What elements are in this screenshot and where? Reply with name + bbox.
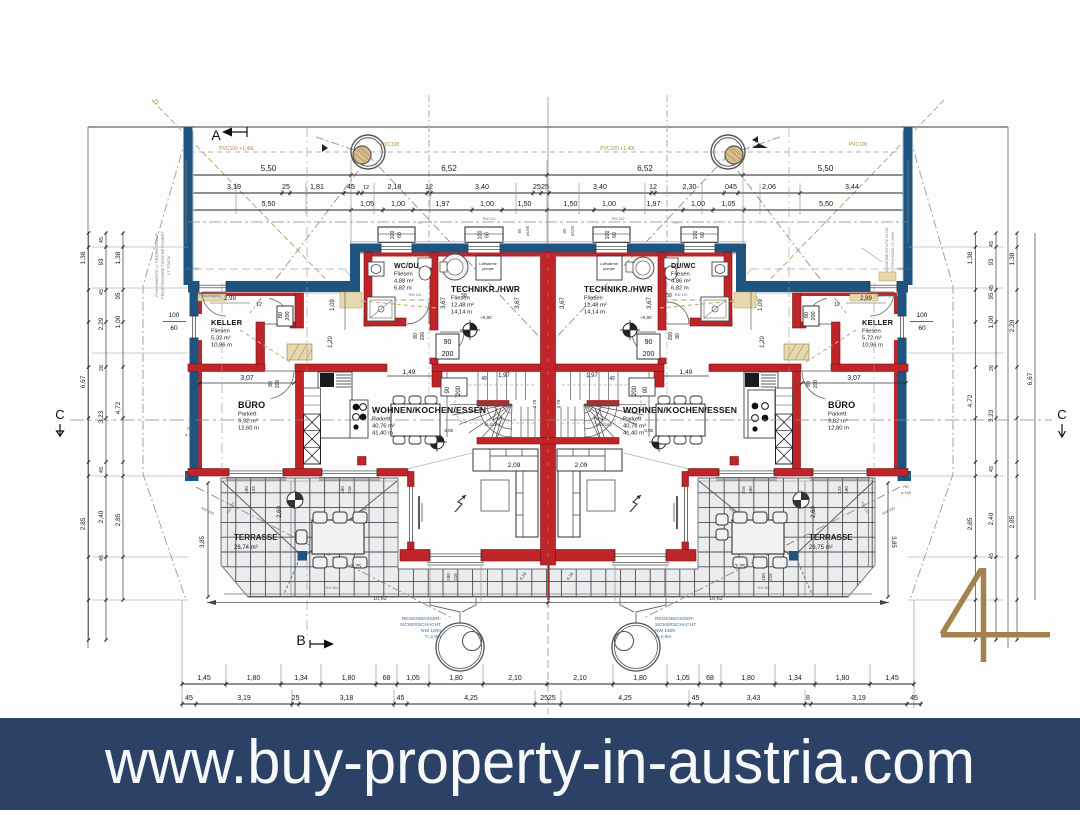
svg-text:2,40: 2,40 <box>988 512 995 525</box>
svg-text:3,19: 3,19 <box>227 182 241 191</box>
svg-text:5,72 m²: 5,72 m² <box>862 336 882 342</box>
svg-text:pumpe: pumpe <box>482 267 494 271</box>
svg-text:3,07: 3,07 <box>240 375 254 382</box>
svg-text:45: 45 <box>99 237 105 243</box>
svg-text:PUTZFASSADE LT. WAHL: PUTZFASSADE LT. WAHL <box>891 231 895 274</box>
svg-text:60: 60 <box>700 232 706 238</box>
svg-text:NW 370: NW 370 <box>898 267 911 271</box>
svg-text:Parkett: Parkett <box>238 412 257 418</box>
svg-text:200: 200 <box>275 380 281 389</box>
svg-text:4,86 m²: 4,86 m² <box>671 279 691 285</box>
svg-text:1,05: 1,05 <box>406 675 420 682</box>
svg-text:NW 1500: NW 1500 <box>655 628 675 634</box>
svg-text:2,10: 2,10 <box>508 675 522 682</box>
svg-text:BÜRO: BÜRO <box>828 400 855 410</box>
svg-text:A: A <box>211 127 221 143</box>
svg-text:1,49: 1,49 <box>403 369 416 376</box>
svg-text:2,10: 2,10 <box>573 675 587 682</box>
svg-text:41,40 m: 41,40 m <box>623 431 644 437</box>
svg-text:60: 60 <box>170 325 178 332</box>
svg-text:ø 165: ø 165 <box>901 491 911 495</box>
svg-text:26: 26 <box>99 365 105 371</box>
svg-text:200: 200 <box>813 380 819 389</box>
svg-text:3,43: 3,43 <box>747 695 761 702</box>
svg-text:10,96 m: 10,96 m <box>862 343 883 349</box>
svg-text:KELLER: KELLER <box>862 318 894 327</box>
svg-text:3,18: 3,18 <box>340 695 354 702</box>
svg-text:2525: 2525 <box>540 695 556 702</box>
svg-text:4,72: 4,72 <box>115 401 122 414</box>
svg-text:1,00: 1,00 <box>480 199 494 208</box>
svg-text:C: C <box>55 407 64 422</box>
svg-text:12: 12 <box>834 302 840 308</box>
svg-text:1,00: 1,00 <box>115 315 122 328</box>
svg-text:200: 200 <box>456 385 462 396</box>
svg-text:200: 200 <box>285 311 291 320</box>
svg-text:90: 90 <box>444 339 452 346</box>
svg-text:200: 200 <box>420 332 426 341</box>
svg-text:85: 85 <box>562 228 567 234</box>
svg-text:1,45: 1,45 <box>885 675 899 682</box>
svg-text:+0,00: +0,00 <box>640 315 652 320</box>
svg-text:3,40: 3,40 <box>593 182 607 191</box>
svg-text:1,09: 1,09 <box>758 299 764 311</box>
svg-text:200: 200 <box>442 351 454 358</box>
svg-text:200: 200 <box>668 332 674 341</box>
svg-text:Fliesen: Fliesen <box>584 296 603 302</box>
svg-text:WOHNEN/KOCHEN/ESSEN: WOHNEN/KOCHEN/ESSEN <box>623 405 737 415</box>
svg-text:8: 8 <box>806 695 810 702</box>
svg-text:60: 60 <box>612 232 618 238</box>
svg-text:49: 49 <box>609 376 615 382</box>
svg-text:60: 60 <box>397 232 403 238</box>
svg-text:49: 49 <box>481 376 487 382</box>
svg-text:1,38: 1,38 <box>967 251 974 264</box>
svg-text:12,48 m²: 12,48 m² <box>584 303 607 309</box>
svg-text:1,09: 1,09 <box>330 299 336 311</box>
svg-text:Luftwärme: Luftwärme <box>479 262 497 266</box>
svg-text:90: 90 <box>643 386 649 393</box>
svg-text:80: 80 <box>806 381 812 387</box>
svg-text:FROSTSICHERE TIEFE BETONIERT: FROSTSICHERE TIEFE BETONIERT <box>160 231 165 299</box>
svg-text:2,60: 2,60 <box>277 506 283 518</box>
svg-text:RW 110: RW 110 <box>612 217 625 221</box>
svg-text:T=2,9m: T=2,9m <box>425 634 441 640</box>
svg-text:RW 110: RW 110 <box>409 293 422 297</box>
svg-text:KELLER: KELLER <box>211 318 243 327</box>
svg-text:RW 110: RW 110 <box>483 217 496 221</box>
svg-text:3,23: 3,23 <box>98 410 105 423</box>
svg-text:5,50: 5,50 <box>262 199 276 208</box>
svg-text:3,67: 3,67 <box>515 297 521 309</box>
svg-text:RH: RH <box>417 221 423 225</box>
svg-text:1,49: 1,49 <box>680 369 693 376</box>
svg-text:1,80: 1,80 <box>836 675 850 682</box>
svg-text:25: 25 <box>282 182 290 191</box>
svg-text:RW 110: RW 110 <box>675 293 688 297</box>
svg-text:12: 12 <box>425 182 433 191</box>
svg-text:45: 45 <box>185 695 193 702</box>
svg-text:68: 68 <box>706 675 714 682</box>
svg-text:1,05: 1,05 <box>676 675 690 682</box>
svg-text:2,30: 2,30 <box>683 182 697 191</box>
svg-text:ø100: ø100 <box>525 225 530 236</box>
svg-text:1,00: 1,00 <box>691 199 705 208</box>
svg-text:2,85: 2,85 <box>1009 515 1016 528</box>
svg-text:ø100: ø100 <box>570 225 575 236</box>
svg-text:3,85: 3,85 <box>890 536 896 548</box>
svg-text:1,80: 1,80 <box>633 675 647 682</box>
svg-text:1,05: 1,05 <box>722 199 736 208</box>
svg-text:2,60: 2,60 <box>811 506 817 518</box>
svg-text:12,60 m: 12,60 m <box>238 426 259 432</box>
svg-text:14,14 m: 14,14 m <box>584 310 605 316</box>
svg-text:Fliesen: Fliesen <box>671 272 690 278</box>
svg-text:6,82 m: 6,82 m <box>671 286 689 292</box>
svg-text:1,20: 1,20 <box>328 336 334 348</box>
svg-text:PVC100 +1,49L: PVC100 +1,49L <box>600 146 636 152</box>
svg-text:95: 95 <box>989 292 995 299</box>
svg-text:100: 100 <box>605 231 611 240</box>
svg-text:FUNDAMENTE U. ERDREICH AUF: FUNDAMENTE U. ERDREICH AUF <box>154 233 159 297</box>
svg-text:1,97: 1,97 <box>647 199 661 208</box>
svg-text:45: 45 <box>989 241 995 247</box>
svg-text:T=2,9m: T=2,9m <box>655 634 671 640</box>
svg-text:58: 58 <box>461 293 467 299</box>
svg-text:1,97: 1,97 <box>436 199 450 208</box>
svg-text:90: 90 <box>445 386 451 393</box>
svg-text:40,76 m²: 40,76 m² <box>623 424 646 430</box>
svg-text:6,67: 6,67 <box>1027 372 1034 385</box>
svg-text:10,62: 10,62 <box>373 596 387 602</box>
svg-text:NW 370: NW 370 <box>186 267 199 271</box>
svg-text:1,80: 1,80 <box>741 675 755 682</box>
svg-text:C: C <box>1057 407 1066 422</box>
svg-text:REGENWASSER-: REGENWASSER- <box>655 616 695 622</box>
svg-text:1,38: 1,38 <box>115 251 122 264</box>
svg-text:200: 200 <box>811 311 817 320</box>
svg-text:3,44: 3,44 <box>845 182 859 191</box>
svg-text:5,50: 5,50 <box>819 199 833 208</box>
svg-text:4,88 m²: 4,88 m² <box>394 279 414 285</box>
svg-text:100: 100 <box>169 312 180 319</box>
svg-text:45: 45 <box>989 285 995 291</box>
svg-text:3,67: 3,67 <box>647 297 653 309</box>
svg-text:1,50: 1,50 <box>564 199 578 208</box>
svg-text:5,50: 5,50 <box>818 164 834 173</box>
svg-text:3,19: 3,19 <box>852 695 866 702</box>
svg-text:Parkett: Parkett <box>623 417 642 423</box>
svg-text:NW 1500: NW 1500 <box>421 628 441 634</box>
svg-text:80: 80 <box>804 312 810 318</box>
svg-text:100: 100 <box>693 231 699 240</box>
svg-text:180: 180 <box>340 486 345 494</box>
svg-text:TECHNIKR./HWR: TECHNIKR./HWR <box>584 285 653 294</box>
svg-text:Fliesen: Fliesen <box>394 272 413 278</box>
svg-text:12: 12 <box>256 302 262 308</box>
svg-text:1,34: 1,34 <box>294 675 308 682</box>
svg-text:100: 100 <box>478 231 484 240</box>
svg-text:1,00: 1,00 <box>988 315 995 328</box>
svg-text:2,09: 2,09 <box>575 462 588 469</box>
svg-text:3,67: 3,67 <box>441 297 447 309</box>
svg-text:2,06: 2,06 <box>762 182 776 191</box>
svg-text:PVC100 +1,49L: PVC100 +1,49L <box>219 146 255 152</box>
svg-text:1,97: 1,97 <box>586 373 598 379</box>
svg-text:95: 95 <box>116 292 122 299</box>
svg-text:4,25: 4,25 <box>618 695 632 702</box>
svg-text:85: 85 <box>517 228 522 234</box>
svg-text:25: 25 <box>292 695 300 702</box>
svg-text:4,25: 4,25 <box>464 695 478 702</box>
svg-text:VOLLWÄRMESCHUTZ 16 CM: VOLLWÄRMESCHUTZ 16 CM <box>885 228 889 277</box>
svg-text:Parkett: Parkett <box>828 412 847 418</box>
svg-text:TERRASSE: TERRASSE <box>234 533 278 542</box>
svg-text:3,25: 3,25 <box>735 564 746 570</box>
svg-text:45: 45 <box>989 553 995 559</box>
svg-text:80: 80 <box>675 333 681 339</box>
svg-text:26: 26 <box>989 365 995 371</box>
svg-text:TERRASSE: TERRASSE <box>809 533 853 542</box>
svg-text:045: 045 <box>725 182 737 191</box>
svg-text:26,74 m²: 26,74 m² <box>234 545 258 551</box>
svg-text:45: 45 <box>910 695 918 702</box>
svg-text:14,14 m: 14,14 m <box>451 310 472 316</box>
svg-text:B: B <box>296 632 305 648</box>
svg-text:180: 180 <box>844 486 849 494</box>
svg-text:133: 133 <box>837 486 842 494</box>
svg-text:WC/DU: WC/DU <box>394 263 419 270</box>
svg-text:40,76 m²: 40,76 m² <box>372 424 395 430</box>
svg-text:WOHNEN/KOCHEN/ESSEN: WOHNEN/KOCHEN/ESSEN <box>372 405 486 415</box>
svg-text:180: 180 <box>446 573 451 581</box>
svg-text:45: 45 <box>989 466 995 472</box>
svg-text:pumpe: pumpe <box>603 267 615 271</box>
svg-text:3,07: 3,07 <box>847 375 861 382</box>
svg-text:1,80: 1,80 <box>449 675 463 682</box>
svg-text:LT. STATIK: LT. STATIK <box>166 255 171 275</box>
svg-text:25: 25 <box>541 182 549 191</box>
svg-text:2,09: 2,09 <box>508 462 521 469</box>
svg-text:45: 45 <box>397 695 405 702</box>
svg-text:200: 200 <box>632 385 638 396</box>
svg-text:45: 45 <box>99 467 105 473</box>
svg-text:3,23: 3,23 <box>988 409 995 422</box>
svg-text:BÜRO: BÜRO <box>238 400 265 410</box>
svg-text:SICKERSCHACHT: SICKERSCHACHT <box>400 622 441 628</box>
svg-text:RH: RH <box>673 221 679 225</box>
svg-text:+0,00: +0,00 <box>480 315 492 320</box>
svg-text:REGENWASSER-: REGENWASSER- <box>402 616 442 622</box>
svg-text:216: 216 <box>768 573 773 581</box>
svg-text:1,38: 1,38 <box>80 251 87 264</box>
svg-text:2,85: 2,85 <box>80 517 87 530</box>
svg-text:10,62: 10,62 <box>709 596 723 602</box>
svg-text:180: 180 <box>761 573 766 581</box>
svg-text:2,78: 2,78 <box>556 399 561 408</box>
svg-text:100: 100 <box>917 312 928 319</box>
svg-text:Hauseingang: Hauseingang <box>875 294 896 298</box>
svg-text:9,82 m²: 9,82 m² <box>828 419 848 425</box>
svg-text:12: 12 <box>649 182 657 191</box>
svg-text:3,19: 3,19 <box>237 695 251 702</box>
svg-text:45: 45 <box>99 289 105 295</box>
svg-text:2,18: 2,18 <box>388 182 402 191</box>
svg-text:2,78: 2,78 <box>532 399 537 408</box>
svg-text:1,97: 1,97 <box>498 373 510 379</box>
svg-text:Parkett: Parkett <box>372 417 391 423</box>
svg-text:180: 180 <box>244 486 249 494</box>
svg-text:41,40 m: 41,40 m <box>372 431 393 437</box>
svg-text:6,52: 6,52 <box>637 164 653 173</box>
svg-text:-3,00: -3,00 <box>443 428 454 433</box>
svg-text:80: 80 <box>413 333 419 339</box>
svg-text:93: 93 <box>989 258 995 265</box>
svg-text:3,85: 3,85 <box>200 536 206 548</box>
svg-text:3,67: 3,67 <box>560 297 566 309</box>
svg-text:2,85: 2,85 <box>115 513 122 526</box>
svg-text:6,82 m: 6,82 m <box>394 286 412 292</box>
svg-text:58: 58 <box>666 293 672 299</box>
svg-text:1,45: 1,45 <box>197 675 211 682</box>
svg-text:68: 68 <box>383 675 391 682</box>
svg-text:ø 165: ø 165 <box>185 433 195 437</box>
svg-text:80: 80 <box>278 312 284 318</box>
svg-text:200: 200 <box>643 351 655 358</box>
svg-text:45: 45 <box>99 555 105 561</box>
svg-text:Luftwärme: Luftwärme <box>600 262 618 266</box>
svg-text:RR: RR <box>187 427 193 431</box>
svg-text:2,29: 2,29 <box>98 317 105 330</box>
svg-text:180: 180 <box>748 486 753 494</box>
svg-text:PVC100: PVC100 <box>381 142 400 148</box>
svg-text:6,52: 6,52 <box>441 164 457 173</box>
svg-text:133: 133 <box>251 486 256 494</box>
svg-text:216: 216 <box>347 486 352 494</box>
svg-text:1,80: 1,80 <box>247 675 261 682</box>
svg-text:26,75 m²: 26,75 m² <box>809 545 833 551</box>
svg-text:1,00: 1,00 <box>391 199 405 208</box>
svg-text:6,67: 6,67 <box>80 375 87 388</box>
svg-text:PVC100: PVC100 <box>849 142 868 148</box>
svg-text:60: 60 <box>918 325 926 332</box>
svg-text:3,25: 3,25 <box>351 564 362 570</box>
svg-text:10,86 m: 10,86 m <box>211 343 232 349</box>
svg-text:1,81: 1,81 <box>310 182 324 191</box>
svg-text:80: 80 <box>268 381 274 387</box>
svg-text:NW 450: NW 450 <box>758 586 771 590</box>
svg-text:216: 216 <box>453 573 458 581</box>
svg-text:NW 450: NW 450 <box>326 586 339 590</box>
svg-text:25: 25 <box>533 182 541 191</box>
svg-text:1,80: 1,80 <box>342 675 356 682</box>
svg-text:2,40: 2,40 <box>98 510 105 523</box>
svg-text:93: 93 <box>99 258 105 265</box>
svg-text:45: 45 <box>692 695 700 702</box>
svg-text:12,48 m²: 12,48 m² <box>451 303 474 309</box>
svg-text:Fliesen: Fliesen <box>211 329 230 335</box>
svg-text:12,80 m: 12,80 m <box>828 426 849 432</box>
svg-text:9,92 m²: 9,92 m² <box>238 419 258 425</box>
svg-text:1,20: 1,20 <box>760 336 766 348</box>
svg-text:3,40: 3,40 <box>475 182 489 191</box>
svg-text:1,38: 1,38 <box>1009 252 1016 265</box>
svg-text:5,50: 5,50 <box>261 164 277 173</box>
svg-text:18,8/18,0: 18,8/18,0 <box>484 423 500 427</box>
svg-text:216: 216 <box>741 486 746 494</box>
svg-text:5,32 m²: 5,32 m² <box>211 336 231 342</box>
svg-text:Hauseingang: Hauseingang <box>199 294 220 298</box>
svg-text:www.buy-property-in-austria.co: www.buy-property-in-austria.com <box>104 728 975 797</box>
svg-text:1,50: 1,50 <box>518 199 532 208</box>
svg-text:90: 90 <box>645 339 653 346</box>
svg-text:1,34: 1,34 <box>788 675 802 682</box>
svg-text:2,99: 2,99 <box>860 296 872 302</box>
svg-text:18,8/18,0: 18,8/18,0 <box>596 423 612 427</box>
svg-text:1,00: 1,00 <box>602 199 616 208</box>
svg-text:12: 12 <box>363 185 369 191</box>
svg-text:2,85: 2,85 <box>967 517 974 530</box>
svg-text:RR: RR <box>903 485 909 489</box>
svg-text:60: 60 <box>485 232 491 238</box>
svg-text:DU/WC: DU/WC <box>671 263 696 270</box>
svg-text:2,29: 2,29 <box>1009 319 1016 332</box>
svg-text:Fliesen: Fliesen <box>862 329 881 335</box>
svg-text:SICKERSCHACHT: SICKERSCHACHT <box>655 622 696 628</box>
svg-text:4,72: 4,72 <box>967 394 974 407</box>
svg-text:1,05: 1,05 <box>360 199 374 208</box>
svg-text:2,99: 2,99 <box>224 296 236 302</box>
svg-text:100: 100 <box>390 231 396 240</box>
